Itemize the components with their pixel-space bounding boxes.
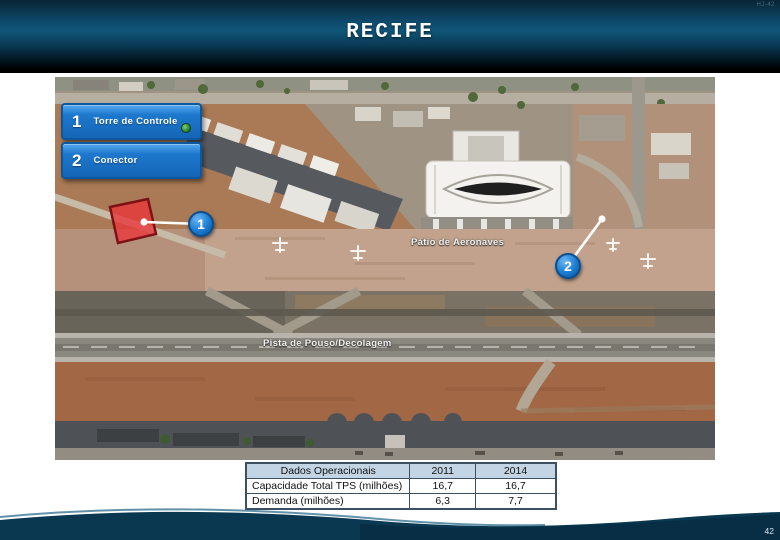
legend-item-torre-de-controle: 1 Torre de Controle	[61, 103, 202, 140]
table-header-cell: Dados Operacionais	[246, 463, 410, 479]
page-number: 42	[765, 526, 774, 536]
slide-header: HJ-42 RECIFE	[0, 0, 780, 73]
table-header-cell: 2014	[476, 463, 556, 479]
legend-label: Torre de Controle	[93, 116, 177, 127]
legend-item-conector: 2 Conector	[61, 142, 202, 179]
map-marker-2: 2	[555, 253, 581, 279]
table-cell: 16,7	[476, 479, 556, 494]
runway-label: Pista de Pouso/Decolagem	[263, 338, 392, 349]
slide: HJ-42 RECIFE	[0, 0, 780, 540]
legend: 1 Torre de Controle 2 Conector	[61, 103, 202, 181]
globe-icon	[181, 123, 191, 133]
table-cell: Capacidade Total TPS (milhões)	[246, 479, 410, 494]
operational-data-table: Dados Operacionais 2011 2014 Capacidade …	[245, 462, 557, 510]
page-title: RECIFE	[0, 21, 780, 44]
corner-mark: HJ-42	[756, 2, 775, 8]
table-header-row: Dados Operacionais 2011 2014	[246, 463, 556, 479]
legend-number: 1	[72, 112, 81, 132]
table-header-cell: 2011	[410, 463, 476, 479]
legend-number: 2	[72, 151, 81, 171]
satellite-map: 1 Torre de Controle 2 Conector 1 2 Pátio…	[55, 77, 715, 460]
footer-wave	[0, 504, 780, 540]
map-marker-1: 1	[188, 211, 214, 237]
table-row: Capacidade Total TPS (milhões) 16,7 16,7	[246, 479, 556, 494]
table-cell: 16,7	[410, 479, 476, 494]
apron-label: Pátio de Aeronaves	[411, 237, 504, 248]
legend-label: Conector	[93, 155, 137, 166]
